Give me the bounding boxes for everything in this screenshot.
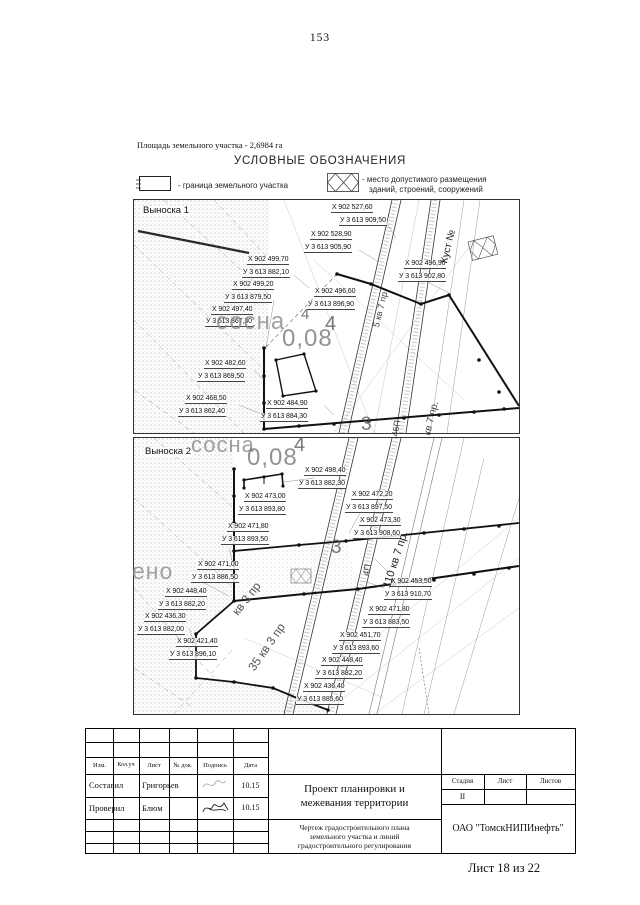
coord-label: Х 902 499,70 <box>247 256 289 265</box>
project-name-line1: Проект планировки и <box>301 783 409 796</box>
grid-line <box>197 729 198 853</box>
road-label: 5 кв 7 пр. <box>372 289 390 329</box>
col-podpis: Подпись <box>197 757 233 774</box>
coord-label: У 3 613 879,50 <box>224 294 272 303</box>
map-area-label: 0,08 <box>247 446 298 470</box>
drawing-name-line1: Чертеж градостроительного плана <box>298 823 411 832</box>
drawing-name-line2: земельного участка и линий <box>298 832 411 841</box>
coord-label: Х 902 482,60 <box>204 360 246 369</box>
coord-label: Х 902 528,90 <box>310 231 352 240</box>
company-name: ОАО "ТомскНИПИнефть" <box>441 804 575 853</box>
page-number: 153 <box>0 32 640 44</box>
col-data: Дата <box>233 757 268 774</box>
stage-label: Стадия <box>441 774 484 789</box>
map-area-label: 4 <box>301 307 310 322</box>
coord-label: У 3 613 882,20 <box>315 670 363 679</box>
coord-label: Х 902 473,00 <box>244 493 286 502</box>
drawing-name: Чертеж градостроительного плана земельно… <box>268 819 441 853</box>
grid-line <box>86 742 269 743</box>
legend-title: УСЛОВНЫЕ ОБОЗНАЧЕНИЯ <box>0 155 640 167</box>
coord-label: У 3 613 909,50 <box>339 217 387 226</box>
coord-label: У 3 613 908,60 <box>353 530 401 539</box>
coord-label: У 3 613 893,50 <box>221 536 269 545</box>
road-label: Куст № <box>440 229 458 264</box>
panel-title: Выноска 2 <box>143 447 193 457</box>
row2-date: 10.15 <box>233 797 268 819</box>
panel-title: Выноска 1 <box>141 206 191 216</box>
coord-label: Х 902 468,50 <box>185 395 227 404</box>
coord-label: У 3 613 869,50 <box>197 373 245 382</box>
col-izm: Изм. <box>86 757 113 774</box>
coord-label: Х 902 471,80 <box>227 523 269 532</box>
coord-label: У 3 613 905,90 <box>304 244 352 253</box>
row2-name: Блюм <box>142 797 197 819</box>
legend-item-boundary: - граница земельного участка <box>178 181 288 191</box>
callout-panel-2: Выноска 2Х 902 498,40У 3 613 882,30Х 902… <box>133 437 520 715</box>
coord-label: У 3 613 884,30 <box>260 413 308 422</box>
row1-name: Григорьев <box>142 774 197 797</box>
map-area-label: 0,08 <box>282 327 333 351</box>
coord-label: Х 902 451,70 <box>339 632 381 641</box>
coord-label: У 3 613 886,50 <box>191 574 239 583</box>
map-area-label: 4 <box>294 435 306 455</box>
coord-label: Х 902 498,40 <box>304 467 346 476</box>
coord-label: У 3 613 896,90 <box>307 301 355 310</box>
coord-label: Х 902 471,80 <box>368 606 410 615</box>
coord-label: У 3 613 897,50 <box>345 504 393 513</box>
legend-item-building-area-line1: - место допустимого размещения <box>362 175 487 185</box>
coord-label: У 3 613 910,70 <box>384 591 432 600</box>
coord-label: Х 902 484,90 <box>266 400 308 409</box>
grid-line <box>86 831 269 832</box>
coord-label: У 3 613 893,80 <box>238 506 286 515</box>
road-label: 35 кв 3 пр <box>246 621 287 673</box>
building-area-swatch-icon <box>327 172 360 193</box>
coord-label: У 3 613 882,20 <box>158 601 206 610</box>
legend-item-building-area-line2: зданий, строений, сооружений <box>362 185 487 195</box>
row2-role: Проверил <box>89 797 139 819</box>
land-area-note: Площадь земельного участка - 2,6984 га <box>137 140 283 150</box>
sheets-label: Листов <box>526 774 575 789</box>
row1-role: Составил <box>89 774 139 797</box>
coord-label: Х 902 499,20 <box>232 281 274 290</box>
callout-1-labels: Выноска 1Х 902 527,60У 3 613 909,50Х 902… <box>134 200 519 433</box>
document-page: 153 Площадь земельного участка - 2,6984 … <box>0 0 640 905</box>
coord-label: Х 902 473,30 <box>359 517 401 526</box>
coord-label: У 3 613 882,10 <box>242 269 290 278</box>
legend-item-building-area: - место допустимого размещения зданий, с… <box>362 175 487 195</box>
coord-label: Х 902 436,40 <box>303 683 345 692</box>
coord-label: Х 902 453,50 <box>390 578 432 587</box>
coord-label: Х 902 448,40 <box>165 588 207 597</box>
road-label: кв 7 пр. <box>423 400 441 436</box>
coord-label: Х 902 436,30 <box>144 613 186 622</box>
sheet-counter: Лист 18 из 22 <box>468 861 540 876</box>
col-ndok: № док. <box>169 757 197 774</box>
coord-label: Х 902 496,60 <box>314 288 356 297</box>
coord-label: Х 902 527,60 <box>331 204 373 213</box>
map-area-label: 3 <box>361 415 373 434</box>
coord-label: Х 902 448,40 <box>321 657 363 666</box>
map-area-label: ено <box>132 560 173 583</box>
grid-line <box>86 843 269 844</box>
stage-value: II <box>441 789 484 804</box>
road-label: 46П <box>391 420 402 438</box>
map-area-label: сосна <box>216 310 285 334</box>
coord-label: У 3 613 885,60 <box>296 696 344 705</box>
coord-label: У 3 613 882,30 <box>298 480 346 489</box>
coord-label: У 3 613 902,80 <box>398 273 446 282</box>
coord-label: У 3 613 893,60 <box>332 645 380 654</box>
title-block: Изм. Кол.уч Лист № док. Подпись Дата Сос… <box>85 728 576 854</box>
coord-label: Х 902 421,40 <box>176 638 218 647</box>
coord-label: У 3 613 883,50 <box>362 619 410 628</box>
coord-label: У 3 613 896,10 <box>169 651 217 660</box>
coord-label: Х 902 471,00 <box>197 561 239 570</box>
road-label: 4П <box>362 564 373 577</box>
coord-label: У 3 613 882,00 <box>137 626 185 635</box>
signature <box>200 799 230 817</box>
project-name: Проект планировки и межевания территории <box>268 774 441 819</box>
map-area-label: сосна <box>191 434 255 456</box>
callout-2-labels: Выноска 2Х 902 498,40У 3 613 882,30Х 902… <box>134 438 519 714</box>
grid-line <box>139 729 140 853</box>
coord-label: У 3 613 862,40 <box>178 408 226 417</box>
callout-panel-1: Выноска 1Х 902 527,60У 3 613 909,50Х 902… <box>133 199 520 434</box>
col-list: Лист <box>139 757 169 774</box>
drawing-name-line3: градостроительного регулирования <box>298 841 411 850</box>
coord-label: Х 902 472,20 <box>351 491 393 500</box>
sheet-label: Лист <box>484 774 526 789</box>
project-name-line2: межевания территории <box>301 797 409 810</box>
road-label: кв 3 пр <box>230 580 263 617</box>
signature <box>200 776 230 794</box>
boundary-swatch-icon <box>136 175 174 193</box>
col-koluch: Кол.уч <box>113 757 139 774</box>
map-area-label: 3 <box>331 538 343 557</box>
row1-date: 10.15 <box>233 774 268 797</box>
